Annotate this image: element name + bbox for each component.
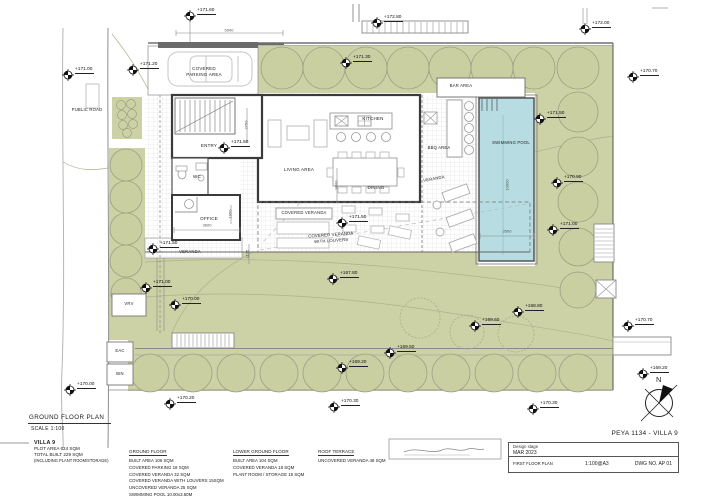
label-dining: DINING (368, 185, 385, 191)
benchmark-icon (512, 306, 524, 318)
label-vrv: VRV (124, 301, 133, 307)
benchmark-icon (622, 320, 634, 332)
label-covered-parking-line2: PARKING AREA (186, 72, 222, 78)
schedule-line: SWIMMING POOL 10.00x3.50M (129, 492, 224, 498)
schedule-line: BUILT AREA 104 SQM (233, 458, 304, 465)
level-marker: +169.60 (469, 320, 481, 332)
schedule-column: GROUND FLOORBUILT AREA 106 SQMCOVERED PA… (129, 440, 224, 498)
label-living-area: LIVING AREA (284, 167, 314, 173)
level-value: +172.80 (384, 15, 403, 22)
title-block-stage-row: Design stage MAR 2023 (509, 443, 678, 457)
level-value: +171.60 (197, 8, 216, 15)
level-value: +170.70 (635, 318, 654, 325)
level-value: +170.30 (540, 401, 559, 408)
level-value: +171.00 (560, 222, 579, 229)
label-covered-parking: COVERED PARKING AREA (186, 66, 222, 77)
level-marker: +171.50 (218, 142, 230, 154)
schedule-line: COVERED PARKING 18 SQM (129, 465, 224, 472)
benchmark-icon (62, 69, 74, 81)
label-bin: BIN (116, 371, 124, 377)
summary-note: (INCLUDING PLANT ROOM/STORAGE) (34, 458, 108, 464)
level-marker: +169.20 (336, 362, 348, 374)
schedule-column-title: LOWER GROUND FLOOR (233, 449, 289, 456)
benchmark-icon (336, 362, 348, 374)
level-value: +168.80 (525, 304, 544, 311)
level-marker: +169.20 (637, 368, 649, 380)
plan-title-underline (28, 423, 111, 424)
level-marker: +170.70 (622, 320, 634, 332)
print-scale: 1:100@A3 (585, 461, 609, 467)
stage-date: MAR 2023 (513, 450, 678, 456)
benchmark-icon (534, 113, 546, 125)
level-marker: +171.30 (340, 57, 352, 69)
dimension-text: 3600 (203, 223, 212, 228)
title-block: Design stage MAR 2023 FIRST FLOOR PLAN 1… (508, 442, 679, 473)
level-value: +171.00 (153, 280, 172, 287)
dimension-text: 3500 (503, 229, 512, 234)
level-marker: +172.00 (579, 23, 591, 35)
label-entry: ENTRY (201, 143, 217, 149)
benchmark-icon (469, 320, 481, 332)
schedule-column: ROOF TERRACEUNCOVERED VERANDA 48 SQM (318, 440, 386, 465)
level-marker: +168.80 (512, 306, 524, 318)
level-value: +171.20 (140, 62, 159, 69)
schedule-line: PLANT ROOM / STORAGE 19 SQM (233, 472, 304, 479)
dimension-text: 1135 (245, 250, 250, 259)
label-covered-veranda: COVERED VERANDA (281, 210, 326, 216)
level-value: +170.70 (640, 69, 659, 76)
project-summary: VILLA 9 PLOT AREA 624 SQM TOTAL BUILT 22… (34, 440, 108, 465)
dimension-text: 9600 (334, 181, 339, 190)
schedule-line: UNCOVERED VERANDA 25 SQM (129, 485, 224, 492)
level-value: +171.30 (353, 55, 372, 62)
label-eac: EAC (115, 348, 124, 354)
benchmark-icon (169, 299, 181, 311)
drawing-title: FIRST FLOOR PLAN (513, 461, 553, 466)
schedule-line: UNCOVERED VERANDA 48 SQM (318, 458, 386, 465)
benchmark-icon (64, 384, 76, 396)
level-marker: +172.80 (371, 17, 383, 29)
level-value: +169.20 (650, 366, 669, 373)
plan-title: GROUND FLOOR PLAN (29, 414, 104, 421)
level-value: +171.50 (349, 215, 368, 222)
schedule-line: COVERED VERANDA WITH LOUVERS 15SQM (129, 478, 224, 485)
level-marker: +170.90 (551, 177, 563, 189)
benchmark-icon (164, 398, 176, 410)
stage-label: Design stage (513, 444, 678, 449)
dwg-number: DWG NO. AP 01 (635, 461, 672, 467)
level-marker: +170.70 (627, 71, 639, 83)
level-value: +170.20 (177, 396, 196, 403)
benchmark-icon (328, 401, 340, 413)
benchmark-icon (340, 57, 352, 69)
plan-scale: SCALE 1:100 (31, 426, 65, 432)
level-value: +172.00 (592, 21, 611, 28)
label-kitchen: KITCHEN (362, 116, 383, 122)
benchmark-icon (551, 177, 563, 189)
north-label: N (656, 377, 662, 383)
benchmark-icon (371, 17, 383, 29)
benchmark-icon (336, 217, 348, 229)
dimension-text: 10000 (505, 179, 510, 190)
label-veranda-left: VERANDA (179, 249, 201, 255)
schedule-line: COVERED VERANDA 18 SQM (233, 465, 304, 472)
level-value: +170.00 (77, 382, 96, 389)
level-value: +169.60 (482, 318, 501, 325)
schedule-column-title: GROUND FLOOR (129, 449, 167, 456)
level-marker: +171.50 (534, 113, 546, 125)
project-name: PEYA 1134 - VILLA 9 (611, 430, 678, 437)
benchmark-icon (147, 243, 159, 255)
dimension-text: 2750 (244, 121, 249, 130)
benchmark-icon (527, 403, 539, 415)
level-marker: +170.00 (169, 299, 181, 311)
floor-plan-canvas: PUBLIC ROAD COVERED PARKING AREA BAR ARE… (0, 0, 705, 498)
benchmark-icon (627, 71, 639, 83)
level-marker: +170.30 (527, 403, 539, 415)
level-value: +167.80 (340, 271, 359, 278)
level-value: +171.50 (547, 111, 566, 118)
level-marker: +171.60 (184, 10, 196, 22)
level-marker: +169.50 (384, 347, 396, 359)
title-block-drawing-row: FIRST FLOOR PLAN 1:100@A3 DWG NO. AP 01 (509, 457, 678, 471)
benchmark-icon (184, 10, 196, 22)
level-marker: +170.20 (164, 398, 176, 410)
schedule-line: BUILT AREA 106 SQM (129, 458, 224, 465)
label-bar-area: BAR AREA (450, 83, 473, 89)
level-marker: +171.50 (147, 243, 159, 255)
label-office: OFFICE (200, 216, 218, 222)
label-public-road: PUBLIC ROAD (72, 107, 103, 113)
level-marker: +171.20 (127, 64, 139, 76)
level-value: +170.00 (182, 297, 201, 304)
label-bbq-area: BBQ AREA (428, 145, 451, 151)
benchmark-icon (140, 282, 152, 294)
label-wc: WC (193, 174, 201, 180)
benchmark-icon (127, 64, 139, 76)
level-marker: +170.30 (328, 401, 340, 413)
level-value: +171.50 (231, 140, 250, 147)
level-marker: +167.80 (327, 273, 339, 285)
benchmark-icon (547, 224, 559, 236)
label-swimming-pool: SWIMMING POOL (492, 140, 530, 146)
level-marker: +171.50 (336, 217, 348, 229)
benchmark-icon (384, 347, 396, 359)
schedule-column: LOWER GROUND FLOORBUILT AREA 104 SQMCOVE… (233, 440, 304, 478)
level-value: +170.30 (341, 399, 360, 406)
benchmark-icon (327, 273, 339, 285)
dimension-text: 1950 (228, 210, 233, 219)
level-value: +169.50 (397, 345, 416, 352)
level-marker: +170.00 (64, 384, 76, 396)
level-marker: +171.00 (62, 69, 74, 81)
dimension-text: 5000 (225, 28, 234, 33)
benchmark-icon (579, 23, 591, 35)
benchmark-icon (218, 142, 230, 154)
schedule-column-title: ROOF TERRACE (318, 449, 354, 456)
level-value: +171.50 (160, 241, 179, 248)
level-marker: +171.00 (140, 282, 152, 294)
level-value: +171.00 (75, 67, 94, 74)
level-value: +169.20 (349, 360, 368, 367)
level-marker: +171.00 (547, 224, 559, 236)
schedule-line: COVERED VERANDA 32 SQM (129, 472, 224, 479)
level-value: +170.90 (564, 175, 583, 182)
benchmark-icon (637, 368, 649, 380)
